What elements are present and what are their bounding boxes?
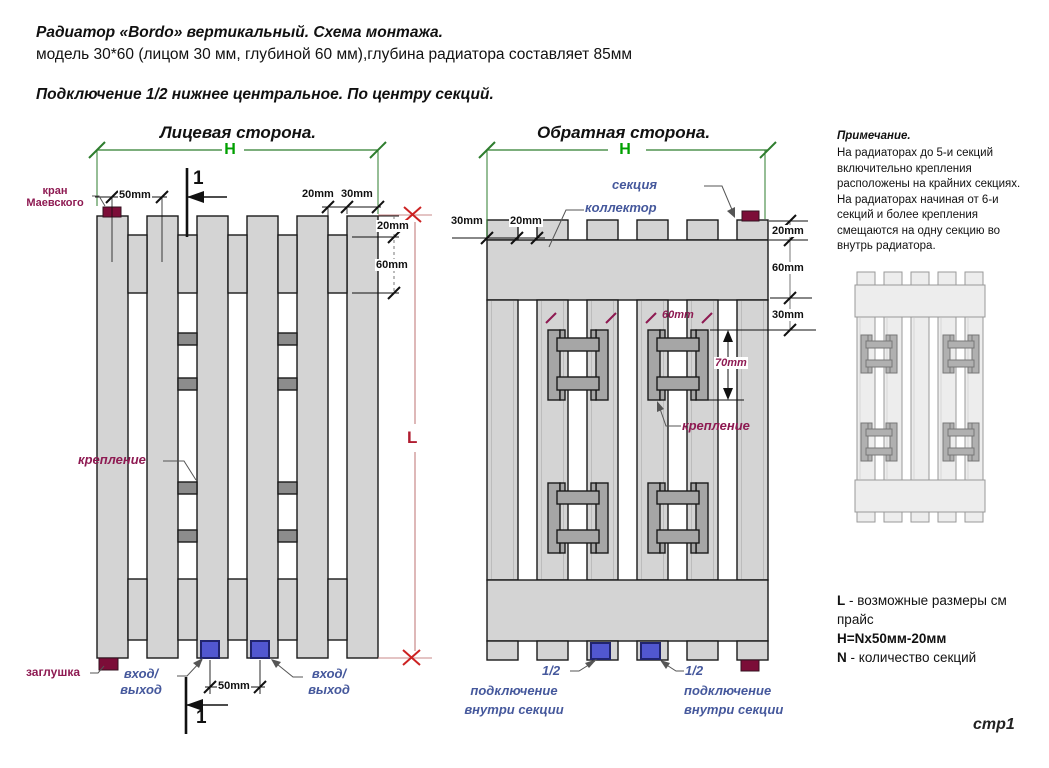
legend-n-text: - количество секций bbox=[851, 650, 977, 665]
connection-left-line1: подключение bbox=[458, 681, 570, 700]
connection-note: Подключение 1/2 нижнее центральное. По ц… bbox=[36, 86, 494, 104]
back-bracket-label: крепление bbox=[682, 418, 750, 433]
length-dimension-label: L bbox=[406, 428, 418, 448]
back-dim-30mm-top: 30mm bbox=[450, 215, 484, 227]
front-radiator-drawing bbox=[97, 216, 378, 658]
bracket-dim-70mm: 70mm bbox=[714, 357, 748, 369]
front-dim-20mm-right: 20mm bbox=[376, 220, 410, 232]
legend-formula: H=Nx50мм-20мм bbox=[837, 629, 1039, 648]
collector-label: коллектор bbox=[585, 200, 657, 215]
legend-l-key: L bbox=[837, 593, 845, 608]
connection-right-line2: внутри секции bbox=[684, 700, 794, 719]
front-h-dimension-label: H bbox=[219, 141, 241, 159]
connection-inside-label-right: подключение внутри секции bbox=[684, 681, 794, 719]
section-label: секция bbox=[612, 177, 657, 192]
mayevsky-valve-label-line2: Маевского bbox=[20, 198, 90, 210]
front-dim-20mm-top: 20mm bbox=[301, 188, 335, 200]
legend-l-text: - возможные размеры см прайс bbox=[837, 593, 1007, 627]
half-inch-label-left: 1/2 bbox=[542, 663, 560, 678]
radiator-mounting-scheme-page: Радиатор «Bordo» вертикальный. Схема мон… bbox=[0, 0, 1049, 768]
front-section-mark-bottom: 1 bbox=[196, 707, 207, 729]
inlet-outlet-right-line1: вход/ bbox=[300, 666, 358, 682]
page-subtitle: модель 30*60 (лицом 30 мм, глубиной 60 м… bbox=[36, 46, 632, 64]
inlet-outlet-right-line2: выход bbox=[300, 682, 358, 698]
connection-right-line1: подключение bbox=[684, 681, 794, 700]
plug-label: заглушка bbox=[26, 665, 80, 679]
front-dim-50mm-top: 50mm bbox=[118, 189, 152, 201]
inlet-outlet-label-right: вход/ выход bbox=[300, 666, 358, 698]
front-section-mark-top: 1 bbox=[193, 168, 204, 190]
back-dim-60mm-right: 60mm bbox=[771, 262, 805, 274]
back-view-title: Обратная сторона. bbox=[537, 123, 710, 143]
connection-left-line2: внутри секции bbox=[458, 700, 570, 719]
note-body: На радиаторах до 5-и секций включительно… bbox=[837, 146, 1035, 255]
inlet-outlet-left-line1: вход/ bbox=[112, 666, 170, 682]
page-title: Радиатор «Bordo» вертикальный. Схема мон… bbox=[36, 24, 443, 42]
half-inch-label-right: 1/2 bbox=[685, 663, 703, 678]
front-dim-30mm-top: 30mm bbox=[340, 188, 374, 200]
front-dim-50mm-bottom: 50mm bbox=[217, 680, 251, 692]
page-number: стр1 bbox=[973, 716, 1015, 734]
back-dim-20mm-right: 20mm bbox=[771, 225, 805, 237]
connection-inside-label-left: подключение внутри секции bbox=[458, 681, 570, 719]
front-dim-60mm-right: 60mm bbox=[375, 259, 409, 271]
legend-line-l: L - возможные размеры см прайс bbox=[837, 591, 1039, 629]
back-dim-20mm-top: 20mm bbox=[509, 215, 543, 227]
legend-n-key: N bbox=[837, 650, 847, 665]
side-schematic-drawing bbox=[855, 272, 985, 522]
front-view-title: Лицевая сторона. bbox=[160, 123, 316, 143]
back-radiator-drawing bbox=[487, 220, 768, 660]
note-title: Примечание. bbox=[837, 130, 911, 142]
inlet-outlet-label-left: вход/ выход bbox=[112, 666, 170, 698]
back-h-dimension-label: H bbox=[612, 141, 638, 159]
mayevsky-valve-label-line1: кран bbox=[20, 186, 90, 198]
legend-line-n: N - количество секций bbox=[837, 648, 1039, 667]
inlet-outlet-left-line2: выход bbox=[112, 682, 170, 698]
front-bracket-label: крепление bbox=[78, 452, 146, 467]
back-dim-30mm-right: 30mm bbox=[771, 309, 805, 321]
mayevsky-valve-label: кран Маевского bbox=[20, 186, 90, 209]
bracket-dim-60mm: 60mm bbox=[662, 309, 694, 321]
